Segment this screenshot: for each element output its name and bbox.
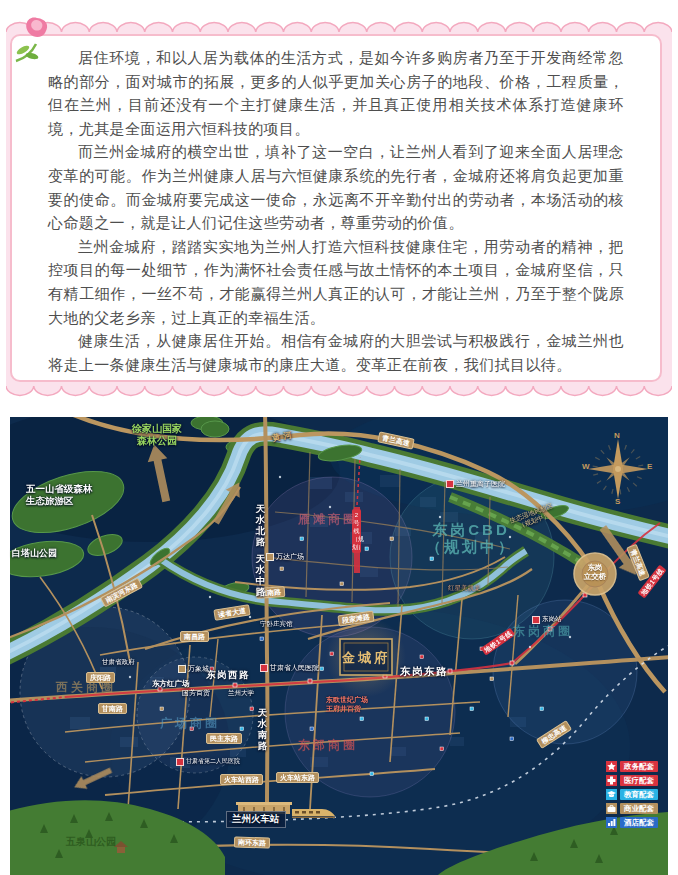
compass-north: N <box>614 431 620 440</box>
compass-south: S <box>615 497 620 506</box>
road-label-tianshui-south: 天水南路 <box>257 707 268 751</box>
compass-west: W <box>582 462 590 471</box>
district-label-xiguan: 西关商圈 <box>56 679 116 696</box>
poi-wanda-plaza: 万达广场 <box>266 552 304 562</box>
rose-icon <box>6 8 60 64</box>
lanzhou-area-map: 黄河 青兰高速 青兰高速 柳忠高速 段家滩路 读者大道 南昌路 甘南路 庆阳路 … <box>10 417 668 875</box>
district-label-donggang: 东岗商圈 <box>513 623 573 640</box>
building-icon <box>606 817 617 828</box>
poi-people-hospital: 甘肃省人民医院 <box>260 663 319 673</box>
decorative-frame: 居住环境，和以人居为载体的生活方式，是如今许多购房者乃至于开发商经常忽略的部分，… <box>6 8 672 408</box>
article-paragraph: 居住环境，和以人居为载体的生活方式，是如今许多购房者乃至于开发商经常忽略的部分，… <box>48 46 624 140</box>
interchange-label: 东岗 立交桥 <box>575 564 615 581</box>
railway-station-label: 兰州火车站 <box>226 811 286 828</box>
mall-icon <box>178 665 186 673</box>
park-label-xujiashan: 徐家山国家 森林公园 <box>126 423 188 447</box>
road-label-donggang-west: 东岗西路 <box>206 669 250 682</box>
road-label-minzhu-east: 民主东路 <box>206 733 242 744</box>
poi-heavy-ion-hospital: 兰州重离子医院 <box>446 479 505 489</box>
legend-item-hotel: 酒店配套 <box>606 817 658 828</box>
article-paragraph: 健康生活，从健康居住开始。相信有金城府的大胆尝试与积极践行，金城兰州也将走上一条… <box>48 329 624 376</box>
article-paragraph: 兰州金城府，踏踏实实地为兰州人打造六恒科技健康住宅，用劳动者的精神，把控项目的每… <box>48 235 624 329</box>
district-label-donggang-cbd: 东岗CBD （规划中） <box>415 521 527 555</box>
legend-item-medical: 医疗配套 <box>606 775 658 786</box>
poi-donggang-metro-station: 东岗站 <box>532 615 562 624</box>
road-label-nanchang: 南昌路 <box>180 631 209 642</box>
article-paragraph: 而兰州金城府的横空出世，填补了这一空白，让兰州人看到了迎来全面人居理念变革的可能… <box>48 140 624 234</box>
road-label-station-west: 火车站西路 <box>220 774 263 785</box>
legend-item-commercial: 商业配套 <box>606 803 658 814</box>
poi-ningwozhuang-hotel: 宁卧庄宾馆 <box>260 620 293 629</box>
road-label-tianshui-north: 天水北路 <box>255 503 266 547</box>
district-label-guangchang: 广场商圈 <box>160 715 220 732</box>
article-page: { "article": { "paragraphs": [ "居住环境，和以人… <box>0 0 678 875</box>
poi-guofang-dept-store: 国芳百货 <box>182 688 210 698</box>
park-label-wuyi-mountain: 五一山省级森林 生态旅游区 <box>26 483 110 507</box>
poi-redstar-macalline: 红星美凯龙 <box>448 584 481 593</box>
district-label-yantan: 雁滩商圈 <box>298 511 358 528</box>
compass-east: E <box>647 462 652 471</box>
poi-lanzhou-university: 兰州大学 <box>228 689 254 698</box>
hospital-icon <box>260 664 268 672</box>
hospital-icon <box>446 480 454 488</box>
hospital-icon <box>176 758 184 766</box>
road-label-station-east: 火车站东路 <box>276 772 319 783</box>
legend-item-education: 教育配套 <box>606 789 658 800</box>
poi-gansu-government: 甘肃省政府 <box>102 658 135 667</box>
road-label-nanhuan-east: 南环东路 <box>234 836 270 848</box>
medical-cross-icon <box>606 775 617 786</box>
map-legend: 政务配套 医疗配套 教育配套 商业配套 酒店配套 <box>606 761 658 831</box>
road-label-donggang-east: 东岗东路 <box>400 665 448 679</box>
mall-icon <box>266 553 274 561</box>
briefcase-icon <box>606 803 617 814</box>
project-label-jinchengfu: 金城府 <box>340 649 392 667</box>
district-label-dongbu: 东部商圈 <box>298 737 358 754</box>
poi-wanxiang-city: 万象城 <box>178 664 209 674</box>
metro-station-icon <box>532 616 540 624</box>
graduation-cap-icon <box>606 789 617 800</box>
poi-dongou-plaza: 东欧世纪广场 王府井百货 <box>326 696 390 713</box>
legend-item-government: 政务配套 <box>606 761 658 772</box>
park-label-wuquan: 五泉山公园 <box>66 835 116 849</box>
article-card: 居住环境，和以人居为载体的生活方式，是如今许多购房者乃至于开发商经常忽略的部分，… <box>10 34 662 382</box>
star-icon <box>606 761 617 772</box>
poi-second-hospital: 甘肃省第二人民医院 <box>176 757 240 766</box>
park-label-baita: 白塔山公园 <box>12 547 57 560</box>
road-label-tianshui-middle: 天水中路 <box>255 553 266 597</box>
road-label-gannan: 甘南路 <box>98 703 127 714</box>
